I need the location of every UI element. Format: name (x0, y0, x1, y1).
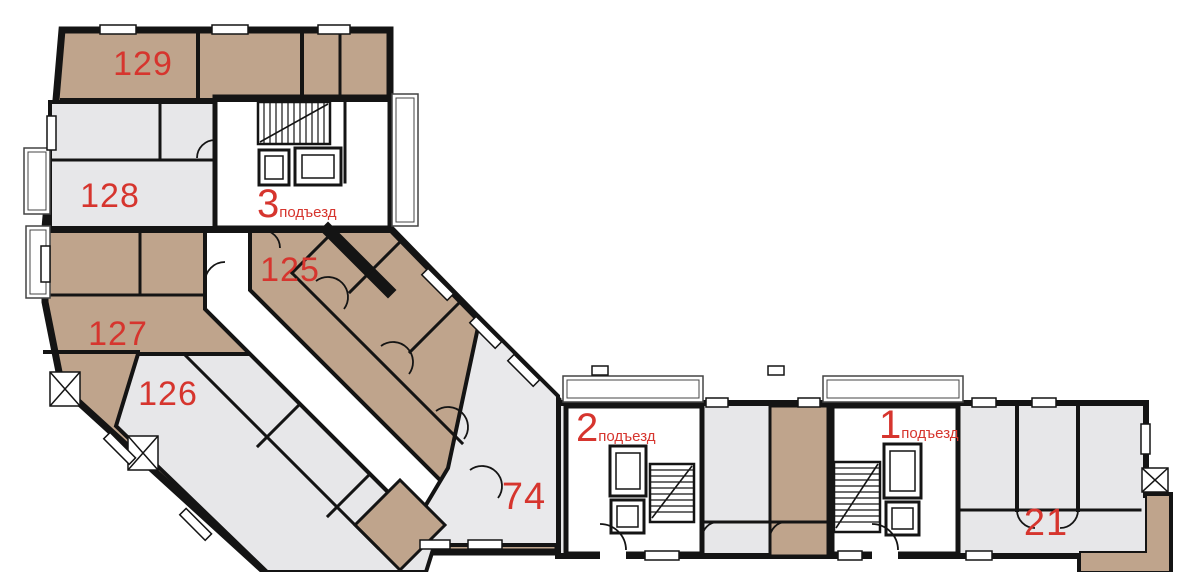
room-apartment-128 (50, 102, 215, 228)
elevators-entrance-1 (884, 444, 921, 535)
floor-plan: 129 128 125 127 126 74 21 3подъезд 2подъ… (0, 0, 1186, 572)
room-tan-column (770, 406, 828, 556)
floor-plan-drawing (0, 0, 1186, 572)
elevators-entrance-3 (259, 148, 341, 185)
elevators-entrance-2 (610, 446, 646, 533)
